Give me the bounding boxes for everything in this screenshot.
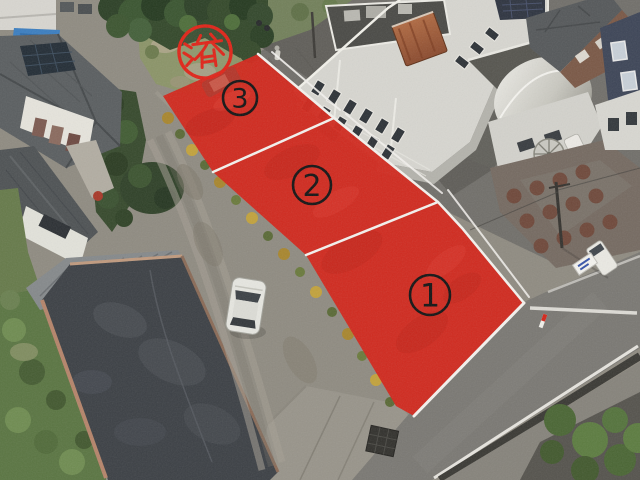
- photo-grain: [0, 0, 640, 480]
- aerial-photo: 3 2 1 済: [0, 0, 640, 480]
- aerial-photo-canvas: 3 2 1 済: [0, 0, 640, 480]
